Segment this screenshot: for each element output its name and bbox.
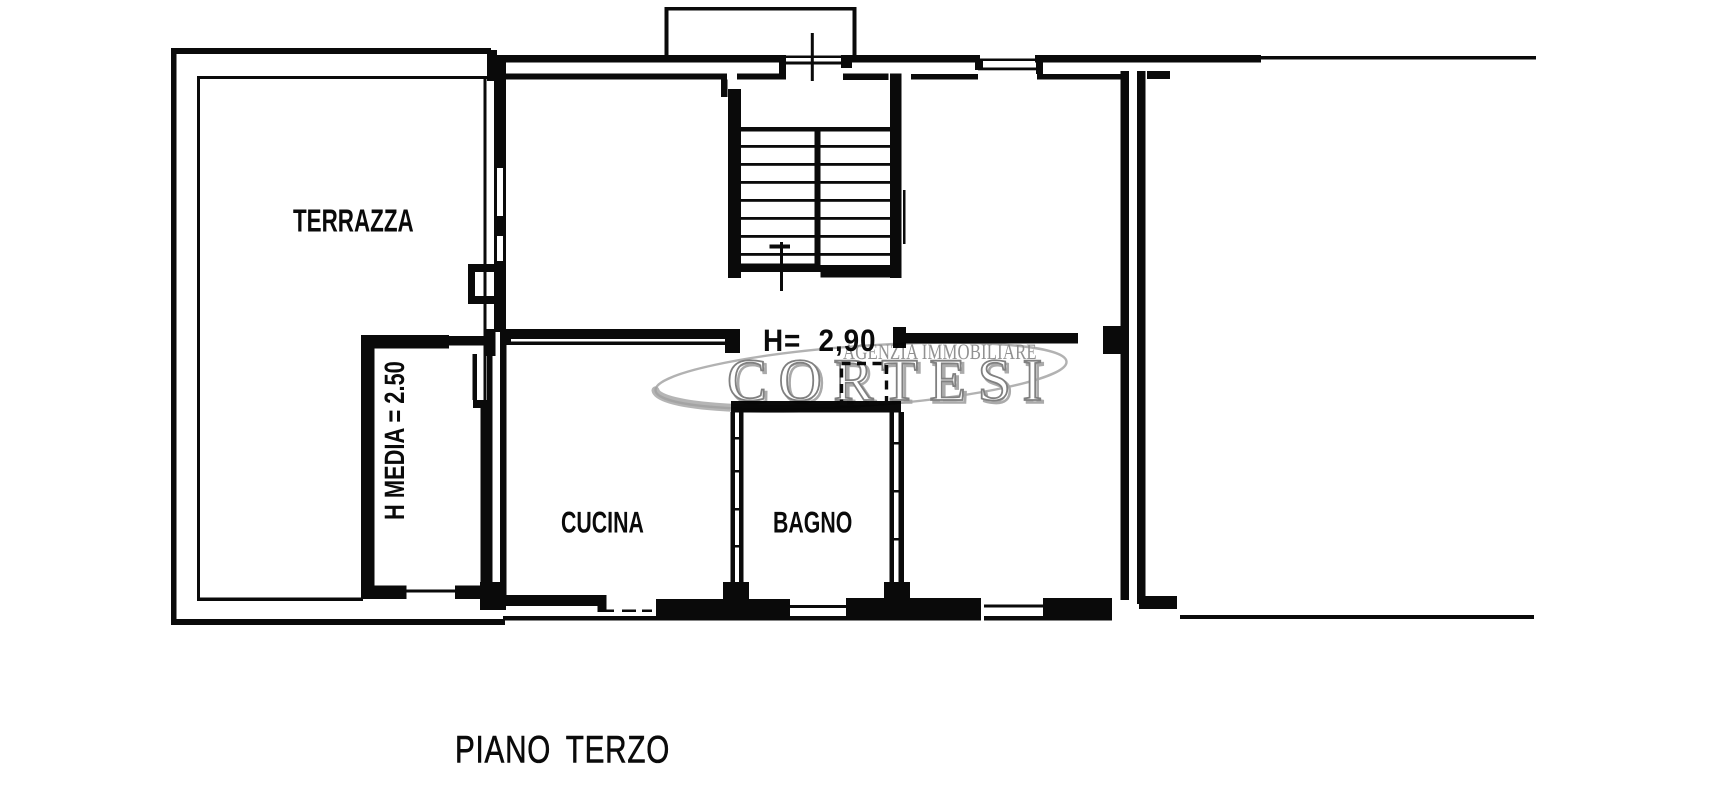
svg-text:PIANO TERZO: PIANO TERZO bbox=[455, 729, 670, 772]
svg-text:CUCINA: CUCINA bbox=[561, 507, 644, 540]
svg-text:H MEDIA = 2.50: H MEDIA = 2.50 bbox=[379, 361, 410, 520]
svg-text:H= 2,90: H= 2,90 bbox=[763, 323, 876, 358]
svg-text:TERRAZZA: TERRAZZA bbox=[293, 203, 414, 239]
svg-text:BAGNO: BAGNO bbox=[773, 507, 852, 540]
